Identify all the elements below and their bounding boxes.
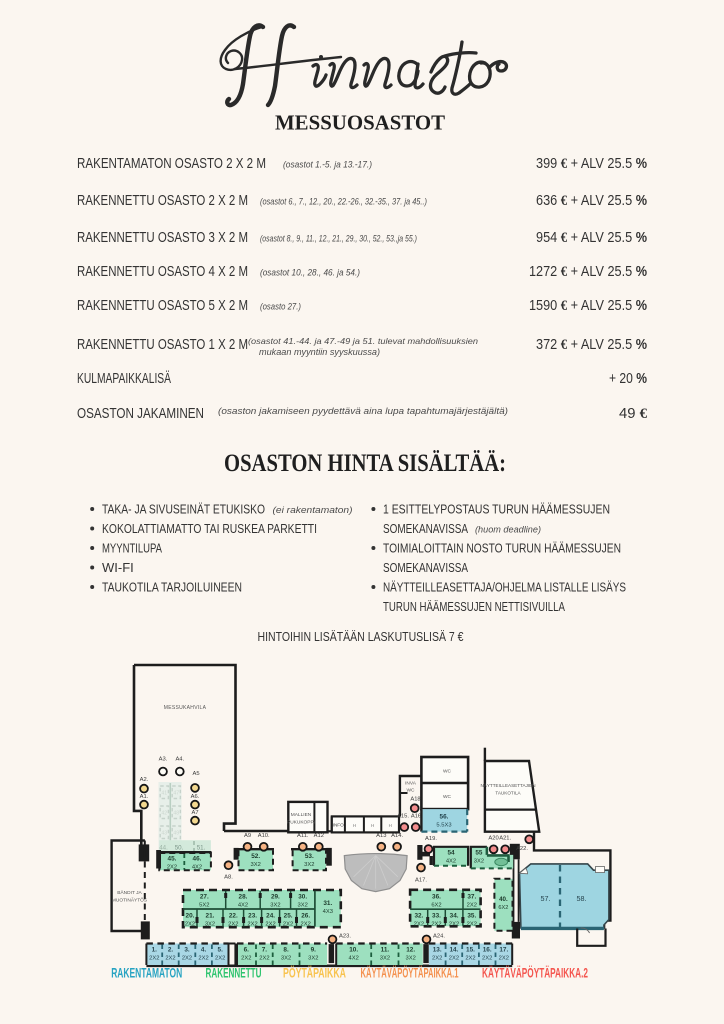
svg-text:PUKUKOPPI: PUKUKOPPI <box>287 820 315 826</box>
svg-text:636 € + ALV 25.5 %: 636 € + ALV 25.5 % <box>536 192 647 209</box>
svg-text:A4.: A4. <box>175 757 184 763</box>
svg-text:35.: 35. <box>467 913 476 920</box>
svg-text:954 € + ALV 25.5 %: 954 € + ALV 25.5 % <box>536 229 647 246</box>
svg-text:47: 47 <box>173 791 179 797</box>
svg-text:54: 54 <box>447 850 455 857</box>
svg-text:1 ESITTELYPOSTAUS TURUN HÄÄMES: 1 ESITTELYPOSTAUS TURUN HÄÄMESSUJEN <box>383 502 610 517</box>
svg-text:(osastot 8., 9., 11., 12., 21.: (osastot 8., 9., 11., 12., 21., 29., 30.… <box>260 234 417 244</box>
svg-text:HINTOIHIN LISÄTÄÄN LASKUTUSLIS: HINTOIHIN LISÄTÄÄN LASKUTUSLISÄ 7 € <box>258 630 464 644</box>
svg-text:A5: A5 <box>192 771 199 777</box>
svg-text:(osastot 41.-44. ja 47.-49 ja: (osastot 41.-44. ja 47.-49 ja 51. tuleva… <box>248 336 478 346</box>
svg-text:A15.: A15. <box>397 814 409 820</box>
svg-text:10.: 10. <box>349 947 358 954</box>
svg-text:MALLIEN: MALLIEN <box>291 812 312 818</box>
svg-text:399 € + ALV 25.5 %: 399 € + ALV 25.5 % <box>536 155 647 172</box>
svg-text:RAKENNETTU OSASTO 2 X 2 M: RAKENNETTU OSASTO 2 X 2 M <box>77 192 248 209</box>
svg-text:TOIMIALOITTAIN NOSTO TURUN HÄÄ: TOIMIALOITTAIN NOSTO TURUN HÄÄMESSUJEN <box>383 541 621 556</box>
svg-text:37.: 37. <box>467 894 476 901</box>
svg-text:34.: 34. <box>450 913 459 920</box>
svg-text:2X2: 2X2 <box>259 956 269 962</box>
svg-text:16.: 16. <box>483 947 492 954</box>
svg-text:+ 20 %: + 20 % <box>609 370 647 387</box>
svg-text:A10.: A10. <box>258 833 270 839</box>
svg-text:MYYNTILUPA: MYYNTILUPA <box>102 541 162 556</box>
svg-text:2X2: 2X2 <box>499 956 509 962</box>
svg-text:30.: 30. <box>298 894 307 901</box>
svg-text:53.: 53. <box>305 853 314 860</box>
svg-text:(osastot 6., 7., 12., 20., 22.: (osastot 6., 7., 12., 20., 22.-26., 32.-… <box>260 197 427 207</box>
svg-text:(osasto 27.): (osasto 27.) <box>260 302 301 312</box>
svg-text:OSASTON JAKAMINEN: OSASTON JAKAMINEN <box>77 405 204 422</box>
svg-text:A19.: A19. <box>425 836 437 842</box>
svg-text:A7: A7 <box>191 810 198 816</box>
svg-text:RAKENNETTU OSASTO 3 X 2 M: RAKENNETTU OSASTO 3 X 2 M <box>77 229 248 246</box>
svg-text:2X2: 2X2 <box>185 922 195 928</box>
svg-text:4X2: 4X2 <box>238 903 248 909</box>
svg-text:2X2: 2X2 <box>482 956 492 962</box>
svg-text:KOKOLATTIAMATTO TAI RUSKEA PAR: KOKOLATTIAMATTO TAI RUSKEA PARKETTI <box>102 521 317 536</box>
svg-text:H: H <box>371 823 374 828</box>
svg-text:2X2: 2X2 <box>241 956 251 962</box>
svg-text:23.: 23. <box>248 913 257 920</box>
svg-text:MESSUOSASTOT: MESSUOSASTOT <box>275 111 445 135</box>
svg-text:3X2: 3X2 <box>474 859 484 865</box>
svg-text:55: 55 <box>475 850 483 857</box>
svg-text:42: 42 <box>161 811 167 817</box>
svg-text:MUOTINÄYTÖS: MUOTINÄYTÖS <box>112 897 147 904</box>
svg-text:3.: 3. <box>184 947 190 954</box>
svg-text:A9: A9 <box>244 833 251 839</box>
svg-text:2X2: 2X2 <box>215 956 225 962</box>
svg-text:SOMEKANAVISSA: SOMEKANAVISSA <box>383 560 468 575</box>
svg-text:11.: 11. <box>381 947 390 954</box>
svg-text:58.: 58. <box>577 894 587 903</box>
svg-text:26.: 26. <box>301 913 310 920</box>
svg-text:A6.: A6. <box>191 794 200 800</box>
svg-text:50.: 50. <box>175 845 184 852</box>
svg-text:24.: 24. <box>266 913 275 920</box>
svg-text:27.: 27. <box>200 894 209 901</box>
svg-text:4.: 4. <box>201 947 207 954</box>
svg-text:6.: 6. <box>244 947 250 954</box>
svg-text:2X2: 2X2 <box>449 956 459 962</box>
svg-text:A18: A18 <box>410 797 420 803</box>
svg-text:2X2: 2X2 <box>414 922 424 928</box>
svg-text:12.: 12. <box>406 947 415 954</box>
svg-text:WC: WC <box>407 788 416 794</box>
svg-text:56.: 56. <box>440 814 449 821</box>
svg-text:2X2: 2X2 <box>228 922 238 928</box>
svg-text:H: H <box>353 823 356 828</box>
svg-text:48: 48 <box>173 811 179 817</box>
svg-text:3X2: 3X2 <box>380 956 390 962</box>
svg-text:TAKA- JA SIVUSEINÄT ETUKISKO: TAKA- JA SIVUSEINÄT ETUKISKO <box>102 502 265 517</box>
svg-text:RAKENNETTU OSASTO 5 X 2 M: RAKENNETTU OSASTO 5 X 2 M <box>77 297 248 314</box>
svg-text:4X2: 4X2 <box>446 859 456 865</box>
svg-text:31.: 31. <box>323 900 332 907</box>
svg-text:A3.: A3. <box>159 757 168 763</box>
svg-text:A13: A13 <box>376 833 386 839</box>
svg-text:2X2: 2X2 <box>198 956 208 962</box>
svg-text:(osastot 10., 28., 46. ja 54.): (osastot 10., 28., 46. ja 54.) <box>260 268 360 278</box>
svg-text:A12: A12 <box>314 833 324 839</box>
svg-text:3X2: 3X2 <box>406 956 416 962</box>
svg-text:TAUKOTILA TARJOILUINEEN: TAUKOTILA TARJOILUINEEN <box>102 580 242 595</box>
svg-text:2X2: 2X2 <box>165 956 175 962</box>
svg-text:43: 43 <box>161 831 167 837</box>
svg-text:2X2: 2X2 <box>247 922 257 928</box>
svg-text:57.: 57. <box>541 894 551 903</box>
svg-text:5.5X3: 5.5X3 <box>436 823 451 829</box>
svg-text:OSASTON HINTA SISÄLTÄÄ:: OSASTON HINTA SISÄLTÄÄ: <box>224 450 506 477</box>
svg-text:mukaan myyntiin syyskuussa): mukaan myyntiin syyskuussa) <box>259 347 380 357</box>
svg-text:8.: 8. <box>283 947 289 954</box>
svg-text:372 € + ALV 25.5 %: 372 € + ALV 25.5 % <box>536 336 647 353</box>
svg-text:46.: 46. <box>193 856 202 863</box>
svg-text:RAKENNETTU OSASTO 4 X 2 M: RAKENNETTU OSASTO 4 X 2 M <box>77 263 248 280</box>
svg-text:14.: 14. <box>449 947 458 954</box>
svg-text:MESSUKAHVILA: MESSUKAHVILA <box>164 705 207 711</box>
svg-text:PÖYTÄPAIKKA: PÖYTÄPAIKKA <box>283 965 346 981</box>
svg-text:3X2: 3X2 <box>270 903 280 909</box>
svg-text:33.: 33. <box>432 913 441 920</box>
svg-text:A22.: A22. <box>516 846 528 852</box>
svg-text:A17.: A17. <box>415 878 427 884</box>
svg-text:(osastot 1.-5. ja 13.-17.): (osastot 1.-5. ja 13.-17.) <box>283 160 372 170</box>
svg-text:1272 € + ALV 25.5 %: 1272 € + ALV 25.5 % <box>529 263 647 280</box>
svg-text:49: 49 <box>173 831 179 837</box>
svg-text:WI-FI: WI-FI <box>102 560 134 575</box>
svg-text:RAKENNETTU: RAKENNETTU <box>206 965 262 981</box>
svg-text:3X2: 3X2 <box>281 956 291 962</box>
svg-text:A23.: A23. <box>339 934 351 940</box>
svg-text:49 €: 49 € <box>619 405 647 422</box>
svg-text:TAUKOTILA: TAUKOTILA <box>495 791 521 796</box>
svg-text:NÄYTTEILLEASETTAJA/OHJELMA LIS: NÄYTTEILLEASETTAJA/OHJELMA LISTALLE LISÄ… <box>383 580 626 595</box>
svg-text:3X2: 3X2 <box>298 903 308 909</box>
svg-text:2X2: 2X2 <box>283 922 293 928</box>
svg-text:2X2: 2X2 <box>467 922 477 928</box>
svg-text:2X2: 2X2 <box>167 865 177 871</box>
svg-text:21.: 21. <box>206 913 215 920</box>
svg-text:SOMEKANAVISSA: SOMEKANAVISSA <box>383 521 468 536</box>
svg-text:9.: 9. <box>311 947 317 954</box>
svg-text:A11.: A11. <box>297 833 309 839</box>
svg-text:51.: 51. <box>197 845 206 852</box>
svg-text:1590 € + ALV 25.5 %: 1590 € + ALV 25.5 % <box>529 297 647 314</box>
svg-text:6X2: 6X2 <box>498 905 508 911</box>
svg-text:7.: 7. <box>262 947 268 954</box>
svg-text:A14.: A14. <box>391 833 403 839</box>
svg-text:2X2: 2X2 <box>432 956 442 962</box>
svg-text:A24.: A24. <box>433 934 445 940</box>
svg-text:2X2: 2X2 <box>265 922 275 928</box>
svg-text:28.: 28. <box>239 894 248 901</box>
svg-text:29.: 29. <box>271 894 280 901</box>
svg-text:22.: 22. <box>229 913 238 920</box>
svg-text:RAKENTAMATON: RAKENTAMATON <box>111 965 182 981</box>
svg-text:13.: 13. <box>433 947 442 954</box>
svg-text:KÄYTÄVÄPÖYTÄPAIKKA.2: KÄYTÄVÄPÖYTÄPAIKKA.2 <box>482 965 588 981</box>
svg-text:2X2: 2X2 <box>149 956 159 962</box>
svg-text:INFO: INFO <box>333 823 344 828</box>
svg-text:15.: 15. <box>466 947 475 954</box>
svg-text:BÄNDIT JA: BÄNDIT JA <box>117 889 142 896</box>
svg-text:52.: 52. <box>251 853 260 860</box>
svg-text:3X2: 3X2 <box>308 956 318 962</box>
svg-text:A20: A20 <box>488 836 498 842</box>
svg-text:(huom deadline): (huom deadline) <box>475 525 541 535</box>
svg-text:2.: 2. <box>168 947 174 954</box>
svg-text:17.: 17. <box>499 947 508 954</box>
svg-text:3X2: 3X2 <box>205 922 215 928</box>
svg-text:A16: A16 <box>411 814 421 820</box>
svg-text:5X2: 5X2 <box>199 903 209 909</box>
svg-text:5.: 5. <box>218 947 224 954</box>
svg-text:32.: 32. <box>414 913 423 920</box>
svg-text:H: H <box>389 823 392 828</box>
svg-text:RAKENNETTU OSASTO 1 X 2 M: RAKENNETTU OSASTO 1 X 2 M <box>77 336 248 353</box>
svg-text:2X2: 2X2 <box>449 922 459 928</box>
svg-text:2X2: 2X2 <box>467 903 477 909</box>
svg-text:A8.: A8. <box>224 875 233 881</box>
svg-text:A1.: A1. <box>140 794 149 800</box>
svg-text:2X2: 2X2 <box>465 956 475 962</box>
svg-text:3X2: 3X2 <box>251 862 261 868</box>
svg-text:A21.: A21. <box>499 836 511 842</box>
svg-text:1.: 1. <box>152 947 158 954</box>
svg-text:A2.: A2. <box>140 777 149 783</box>
svg-text:NÄYTTEILLEASETTAJIEN: NÄYTTEILLEASETTAJIEN <box>480 782 535 788</box>
svg-text:KÄYTÄVÄPÖYTÄPAIKKA.1: KÄYTÄVÄPÖYTÄPAIKKA.1 <box>361 965 459 981</box>
svg-text:41: 41 <box>161 791 167 797</box>
svg-text:WC: WC <box>443 769 452 775</box>
svg-text:20.: 20. <box>186 913 195 920</box>
svg-text:4X2: 4X2 <box>192 865 202 871</box>
svg-text:TURUN HÄÄMESSUJEN NETTISIVUILL: TURUN HÄÄMESSUJEN NETTISIVUILLA <box>383 599 565 614</box>
svg-text:(ei rakentamaton): (ei rakentamaton) <box>273 505 353 515</box>
svg-text:40.: 40. <box>499 896 508 903</box>
svg-text:(osaston jakamiseen pyydettävä: (osaston jakamiseen pyydettävä aina lupa… <box>218 406 508 416</box>
svg-text:RAKENTAMATON OSASTO 2 X 2 M: RAKENTAMATON OSASTO 2 X 2 M <box>77 155 266 172</box>
svg-text:3X2: 3X2 <box>304 862 314 868</box>
svg-text:4X2: 4X2 <box>349 956 359 962</box>
svg-text:6X2: 6X2 <box>431 903 441 909</box>
svg-text:36.: 36. <box>432 894 441 901</box>
svg-text:WC: WC <box>443 794 452 800</box>
svg-text:25.: 25. <box>284 913 293 920</box>
svg-text:INVA: INVA <box>405 781 417 787</box>
svg-text:KULMAPAIKKALISÄ: KULMAPAIKKALISÄ <box>77 370 172 387</box>
svg-text:45.: 45. <box>168 856 177 863</box>
svg-text:2X2: 2X2 <box>431 922 441 928</box>
svg-text:2X2: 2X2 <box>182 956 192 962</box>
svg-text:4X3: 4X3 <box>323 909 333 915</box>
svg-text:2X2: 2X2 <box>301 922 311 928</box>
